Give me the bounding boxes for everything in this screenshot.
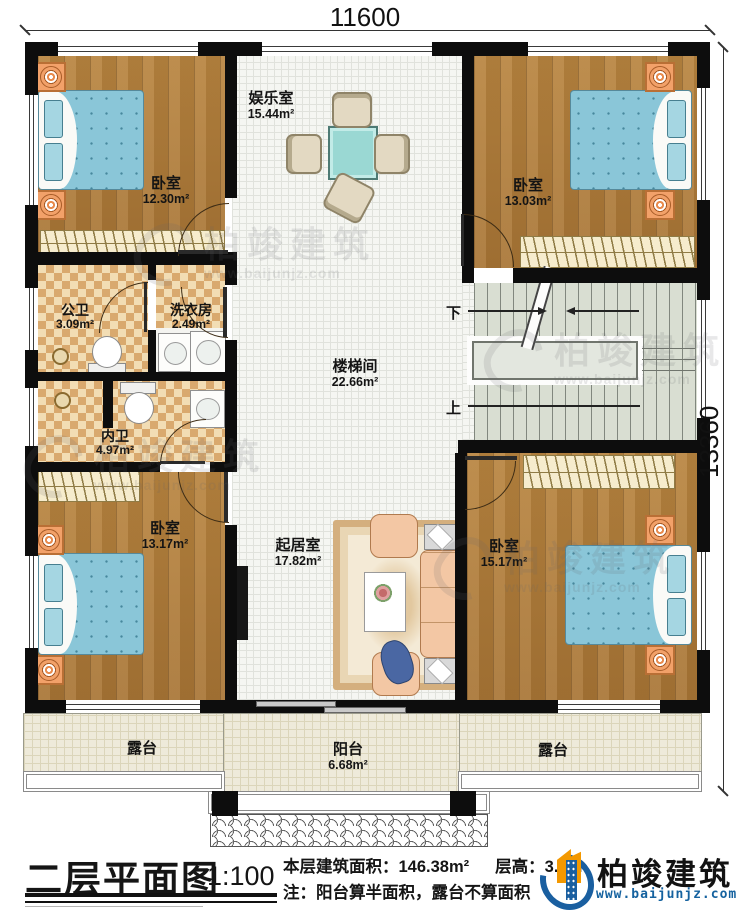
terrace-railing <box>23 771 225 792</box>
lamp-icon <box>40 194 62 216</box>
window <box>25 556 38 648</box>
balcony-railing <box>208 791 490 814</box>
stair-down-label: 下 <box>446 302 461 323</box>
pillow <box>44 608 63 646</box>
door-leaf <box>224 472 228 522</box>
stair-arrow <box>538 307 547 315</box>
window <box>558 700 660 713</box>
logo-building-blue <box>566 860 577 900</box>
room-label-balcony: 阳台 6.68m² <box>308 741 388 773</box>
room-label-bedroom-bl: 卧室 13.17m² <box>115 520 215 552</box>
right-dimension-value: 13360 <box>694 388 725 478</box>
wall-segment <box>458 440 710 453</box>
stair-down-line <box>468 310 538 312</box>
wall-segment <box>38 462 160 472</box>
toilet <box>124 392 154 424</box>
toilet <box>92 336 122 368</box>
pillow <box>667 143 686 181</box>
roof-awning <box>210 814 488 847</box>
sink-basin <box>164 342 187 365</box>
lamp-icon <box>38 659 60 681</box>
side-table <box>424 658 456 684</box>
armchair <box>370 514 418 558</box>
wall-segment <box>210 462 237 472</box>
window <box>25 388 38 446</box>
door-leaf <box>461 214 464 266</box>
nightstand <box>645 645 675 675</box>
bed <box>565 545 692 645</box>
top-dimension-value: 11600 <box>290 2 440 33</box>
chair <box>374 134 410 174</box>
washer-drum <box>196 340 221 365</box>
nightstand <box>36 190 66 220</box>
balcony-post <box>212 791 238 816</box>
lamp-icon <box>38 529 60 551</box>
pillow <box>44 100 63 138</box>
window <box>25 95 38 205</box>
chair <box>286 134 322 174</box>
lamp-icon <box>649 519 671 541</box>
stair-handrail <box>472 341 638 380</box>
bed <box>570 90 692 190</box>
stair-landing-line <box>642 348 695 349</box>
title-underline <box>25 906 203 907</box>
wall-segment <box>225 56 237 198</box>
stair-landing-line <box>642 370 695 371</box>
room-label-terrace-right: 露台 <box>513 742 593 759</box>
pillow <box>667 598 686 636</box>
window <box>528 42 668 56</box>
wall-segment <box>225 525 237 700</box>
terrace-railing <box>458 771 702 792</box>
bed <box>38 553 144 655</box>
title-underline <box>25 901 277 903</box>
wall-segment <box>148 330 156 372</box>
side-table <box>424 524 456 550</box>
lamp-icon <box>649 649 671 671</box>
wardrobe <box>520 236 695 268</box>
window <box>262 42 432 56</box>
pillow <box>667 555 686 593</box>
laundry-sink <box>158 333 192 372</box>
room-label-terrace-left: 露台 <box>102 740 182 757</box>
chair <box>332 92 372 128</box>
room-label-laundry: 洗衣房 2.49m² <box>151 302 231 332</box>
room-label-bedroom-tr: 卧室 13.03m² <box>478 177 578 209</box>
shower-head <box>54 392 71 409</box>
pillow <box>44 564 63 602</box>
shower-head <box>52 348 69 365</box>
tv <box>236 566 248 640</box>
door-leaf <box>160 461 205 464</box>
wall-segment <box>513 268 697 283</box>
room-label-stairwell: 楼梯间 22.66m² <box>305 358 405 390</box>
door-leaf <box>144 282 147 332</box>
room-label-public-bath: 公卫 3.09m² <box>35 302 115 332</box>
nightstand <box>36 62 66 92</box>
floor-area-text: 本层建筑面积：146.38m² <box>283 853 469 877</box>
stair-arrow <box>566 307 575 315</box>
lamp-icon <box>649 66 671 88</box>
side-table-top <box>427 524 454 551</box>
stair-down-line <box>575 310 639 312</box>
title-underline <box>25 893 277 897</box>
flower-decor <box>372 582 394 604</box>
sink-basin <box>196 398 220 420</box>
door-leaf <box>178 250 228 254</box>
brand-logo-icon <box>541 847 593 905</box>
window <box>66 700 200 713</box>
pillow <box>667 100 686 138</box>
wall-segment <box>225 340 237 472</box>
pillow <box>44 143 63 181</box>
nightstand <box>645 190 675 220</box>
room-label-bedroom-br: 卧室 15.17m² <box>454 538 554 570</box>
door-leaf <box>465 456 517 460</box>
window <box>697 88 710 200</box>
wall-segment <box>38 372 237 381</box>
nightstand <box>34 525 64 555</box>
room-label-entertainment: 娱乐室 15.44m² <box>221 90 321 122</box>
floor-area-info: 本层建筑面积：146.38m² 层高：3.3m <box>283 853 582 877</box>
game-table <box>328 126 378 180</box>
window <box>58 42 198 56</box>
drawing-scale: 1:100 <box>207 861 275 892</box>
stair-up-line <box>468 405 640 407</box>
lamp-icon <box>649 194 671 216</box>
nightstand <box>645 62 675 92</box>
room-label-bedroom-tl: 卧室 12.30m² <box>116 175 216 207</box>
nightstand <box>34 655 64 685</box>
wardrobe <box>38 470 140 502</box>
room-label-living: 起居室 17.82m² <box>248 537 348 569</box>
room-label-private-bath: 内卫 4.97m² <box>75 428 155 458</box>
sliding-door <box>324 707 406 713</box>
wall-segment <box>103 381 113 428</box>
floor-plan: 11600 13360 下 上 <box>0 0 750 913</box>
wall-segment <box>148 265 156 280</box>
stair-landing-line <box>642 359 695 360</box>
brand-url: www.baijunjz.com <box>596 887 737 902</box>
lamp-icon <box>40 66 62 88</box>
window <box>697 552 710 650</box>
balcony-post <box>450 791 476 816</box>
nightstand <box>645 515 675 545</box>
area-note: 注：阳台算半面积，露台不算面积 <box>283 879 531 903</box>
side-table-top <box>427 658 454 685</box>
wardrobe <box>523 455 675 489</box>
stair-up-label: 上 <box>446 397 461 418</box>
